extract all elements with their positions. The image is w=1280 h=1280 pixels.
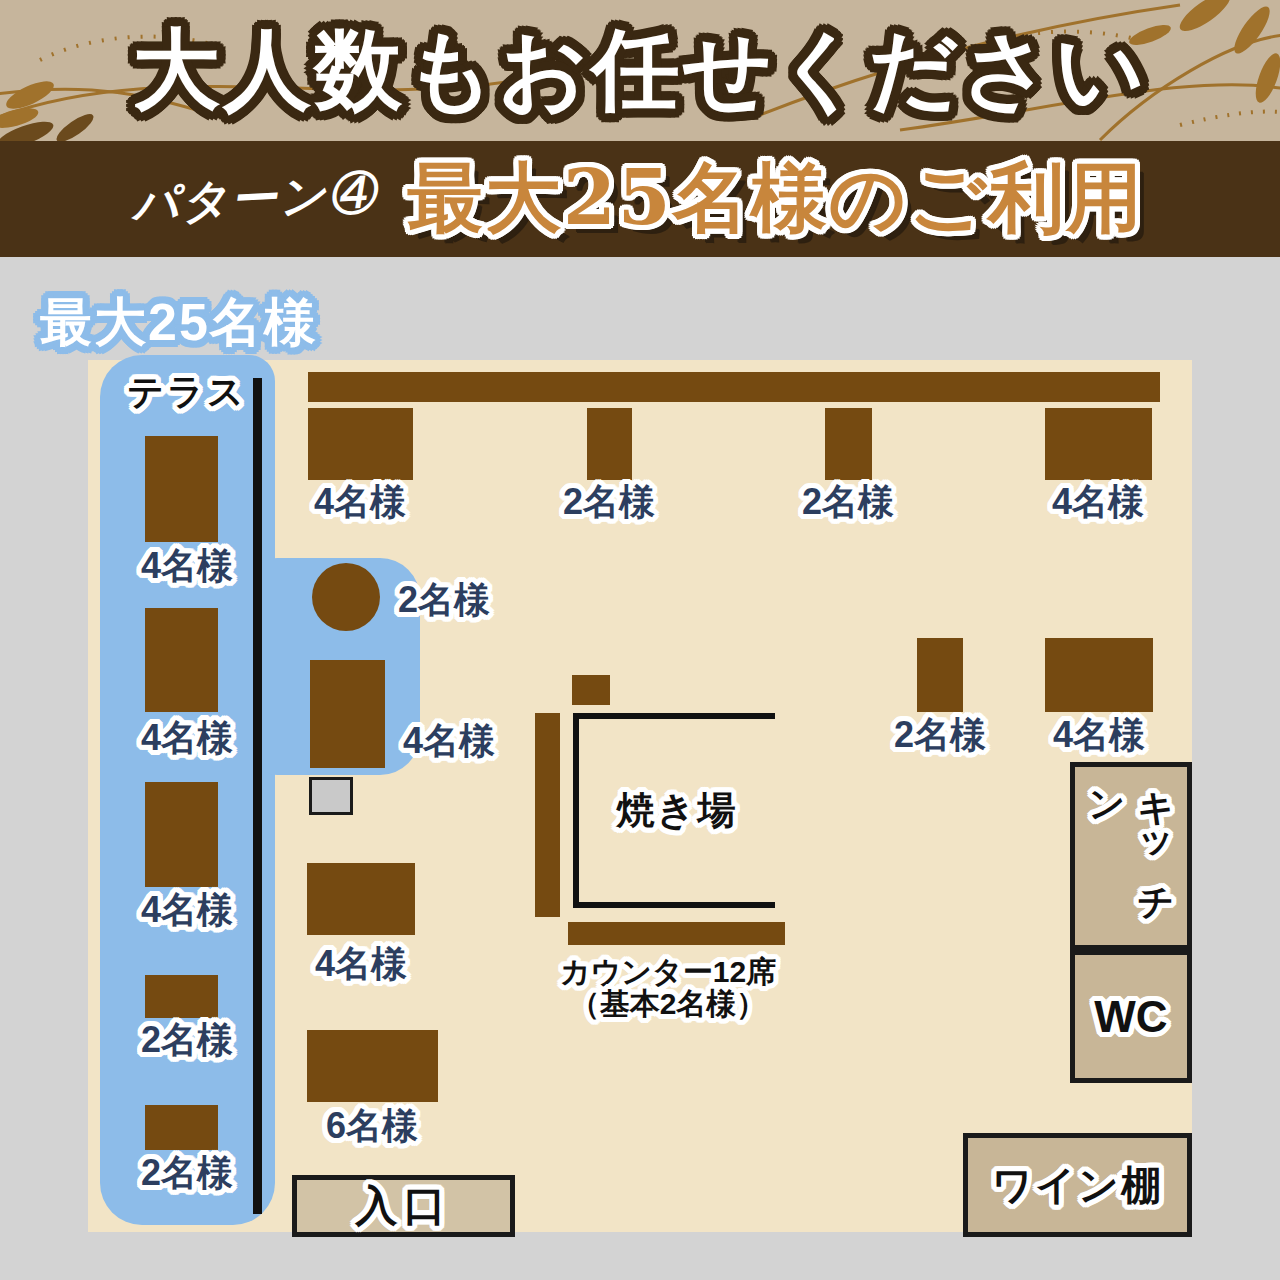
seat-label: 4名様 <box>141 720 233 756</box>
pattern-bar: パターン④ 最大25名様のご利用 <box>0 141 1280 257</box>
table-terrace-2 <box>145 608 218 712</box>
table-terrace-4 <box>145 975 218 1018</box>
seat-label: 2名様 <box>141 1155 233 1191</box>
wine-shelf-label: ワイン棚 <box>992 1158 1163 1213</box>
seat-label: 2名様 <box>398 582 490 618</box>
banner-title: 大人数もお任せください <box>132 11 1147 130</box>
table-right-4 <box>1045 638 1153 712</box>
table-terrace-5 <box>145 1105 218 1150</box>
grill-area: 焼き場 <box>573 713 775 908</box>
counter-seat-vertical <box>535 713 560 917</box>
table-terrace-3 <box>145 782 218 887</box>
table-terrace-1 <box>145 436 218 542</box>
table-top-4 <box>1045 408 1152 480</box>
table-mid-6 <box>307 1030 438 1102</box>
wc-box: WC <box>1070 950 1192 1083</box>
floor-plan: テラス 4名様 4名様 4名様 2名様 2名様 4名様 2名様 2名様 4名様 … <box>88 360 1192 1232</box>
pattern-title: 最大25名様のご利用 <box>407 148 1144 251</box>
kitchen-box: キッチン <box>1070 762 1192 950</box>
seat-label: 4名様 <box>141 548 233 584</box>
seat-label: 4名様 <box>315 946 407 982</box>
wine-shelf-box: ワイン棚 <box>963 1133 1192 1237</box>
counter-note-line1: カウンター12席 <box>560 956 776 988</box>
seat-label: 4名様 <box>403 723 495 759</box>
terrace-label: テラス <box>127 368 247 417</box>
table-top-2 <box>587 408 632 480</box>
table-top-1 <box>308 408 413 480</box>
terrace-wall <box>253 378 262 1214</box>
entrance-box: 入口 <box>292 1175 515 1237</box>
kitchen-label: キッチン <box>1082 767 1180 945</box>
seat-label: 2名様 <box>894 717 986 753</box>
seat-label: 2名様 <box>563 484 655 520</box>
top-bench <box>308 372 1160 402</box>
seat-label: 4名様 <box>1052 484 1144 520</box>
main-banner: 大人数もお任せください <box>0 0 1280 141</box>
table-mid-4 <box>307 863 415 935</box>
pattern-number-label: パターン④ <box>130 162 386 237</box>
capacity-badge: 最大25名様 <box>40 288 318 358</box>
counter-seat-horizontal <box>568 922 785 945</box>
seat-label: 2名様 <box>141 1022 233 1058</box>
table-top-3 <box>825 408 872 480</box>
table-annex-4 <box>310 660 385 768</box>
grill-side-table <box>572 675 610 705</box>
grill-label: 焼き場 <box>617 785 738 836</box>
counter-note: カウンター12席 （基本2名様） <box>560 956 776 1019</box>
seat-label: 4名様 <box>314 484 406 520</box>
seat-label: 4名様 <box>1053 717 1145 753</box>
table-right-2 <box>917 638 963 712</box>
table-round-2 <box>312 563 380 631</box>
wc-label: WC <box>1094 992 1167 1042</box>
seat-label: 6名様 <box>326 1108 418 1144</box>
step-box <box>309 777 353 815</box>
seat-label: 4名様 <box>141 892 233 928</box>
entrance-label: 入口 <box>356 1178 452 1234</box>
counter-note-line2: （基本2名様） <box>560 988 776 1020</box>
seat-label: 2名様 <box>802 484 894 520</box>
